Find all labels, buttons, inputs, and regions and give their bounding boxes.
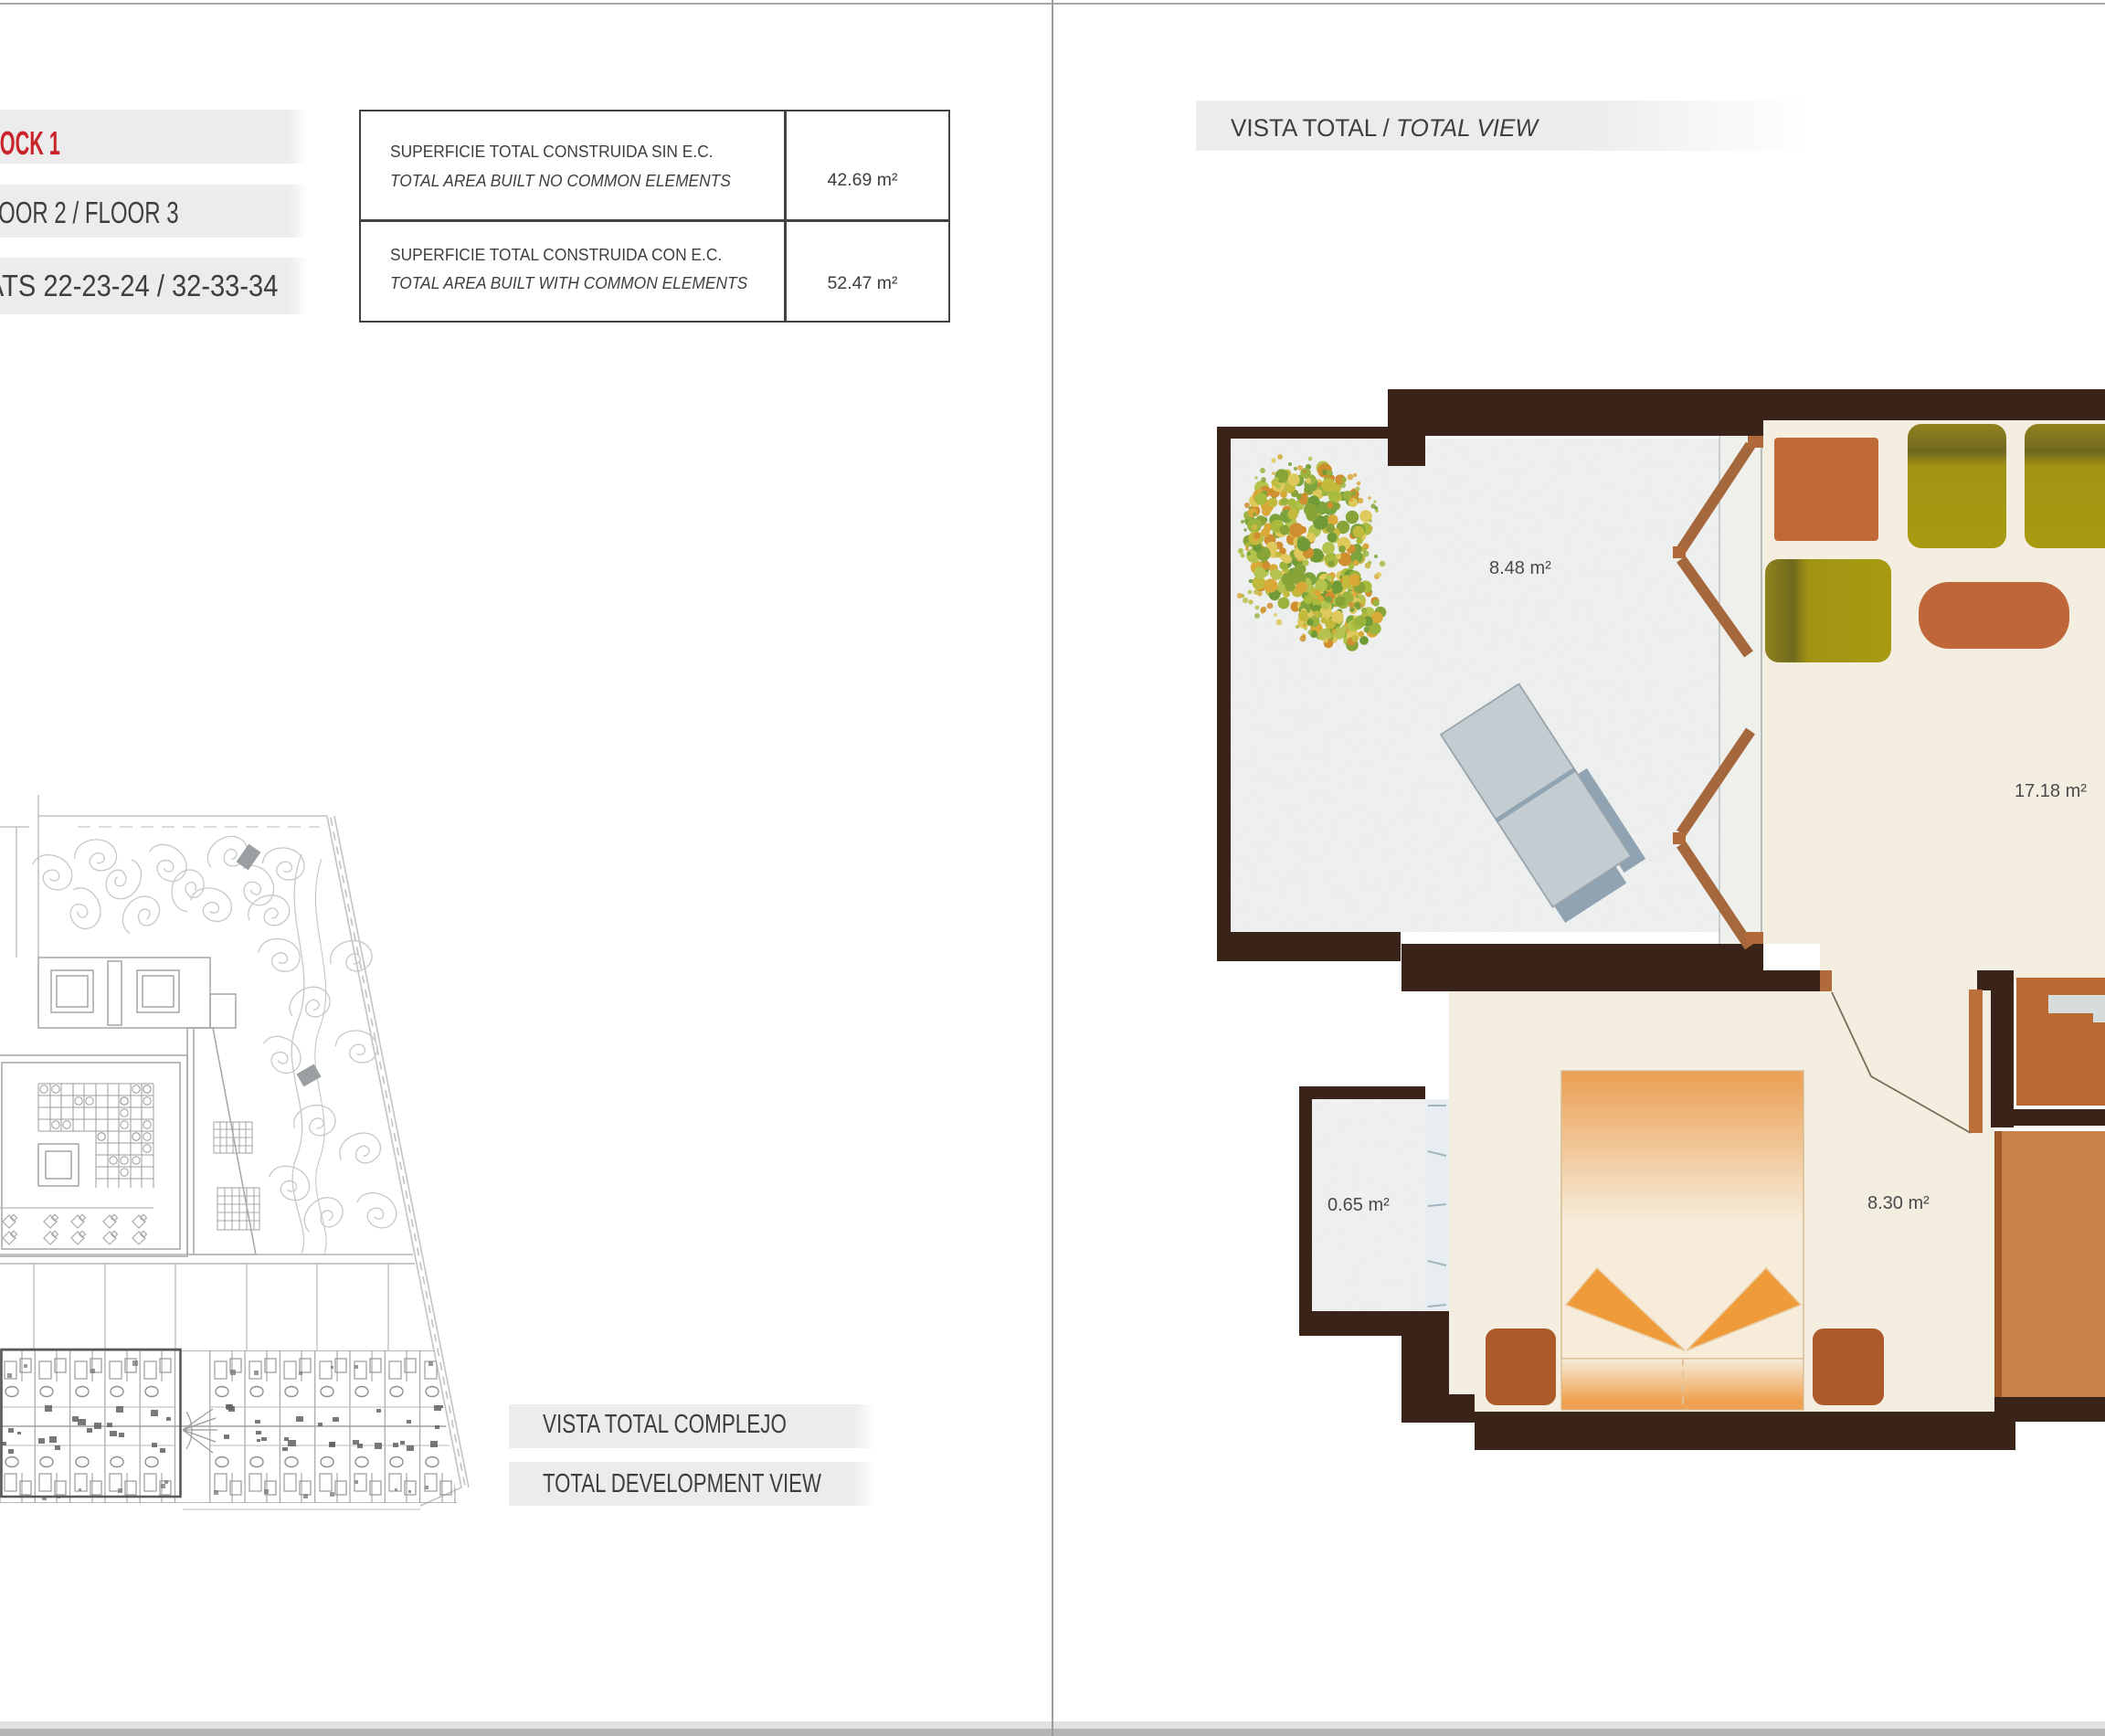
svg-text:8.30 m²: 8.30 m² bbox=[1867, 1193, 1930, 1213]
svg-text:17.18 m²: 17.18 m² bbox=[2015, 781, 2087, 801]
svg-text:8.48 m²: 8.48 m² bbox=[1489, 558, 1551, 578]
svg-text:0.65 m²: 0.65 m² bbox=[1328, 1195, 1390, 1215]
